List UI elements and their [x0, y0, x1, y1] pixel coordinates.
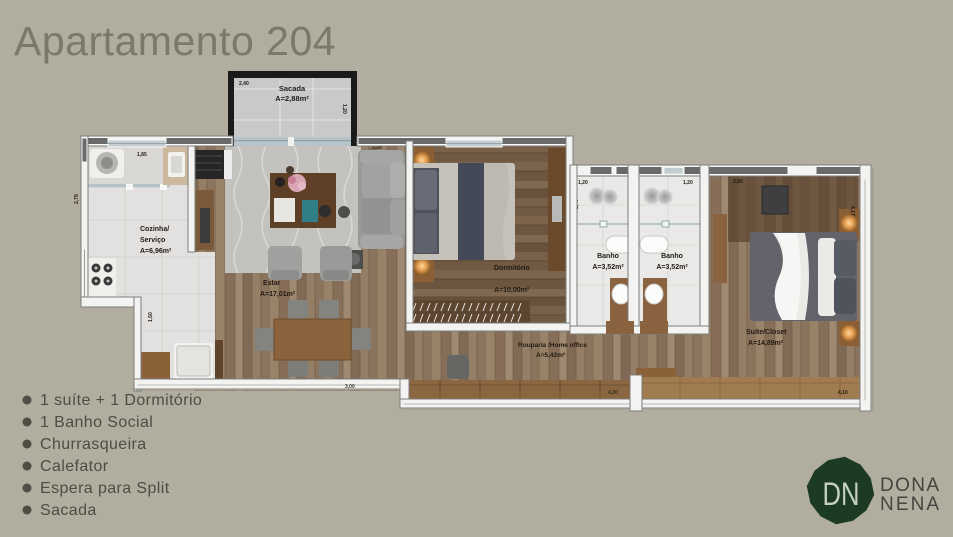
svg-text:1 suíte + 1 Dormitório: 1 suíte + 1 Dormitório	[40, 392, 202, 409]
svg-text:A=14,89m²: A=14,89m²	[748, 340, 784, 347]
svg-text:Cozinha/: Cozinha/	[140, 226, 169, 233]
svg-text:1,20: 1,20	[578, 180, 588, 186]
svg-text:A=2,88m²: A=2,88m²	[275, 94, 309, 103]
svg-text:A=5,42m²: A=5,42m²	[536, 352, 566, 359]
svg-text:1,85: 1,85	[137, 152, 147, 158]
svg-text:1,20: 1,20	[341, 104, 347, 114]
svg-text:Estar: Estar	[263, 280, 281, 287]
svg-text:1,50: 1,50	[148, 312, 154, 322]
svg-text:A=3,52m²: A=3,52m²	[656, 264, 688, 271]
svg-text:3,00: 3,00	[345, 384, 355, 390]
svg-text:2,40: 2,40	[239, 81, 249, 87]
svg-text:A=10,00m²: A=10,00m²	[494, 287, 530, 294]
svg-text:Apartamento 204: Apartamento 204	[14, 18, 336, 64]
svg-text:Banho: Banho	[661, 253, 683, 260]
svg-text:DONA: DONA	[880, 475, 941, 496]
svg-text:4,20: 4,20	[608, 390, 618, 396]
svg-text:2,79: 2,79	[74, 194, 80, 204]
svg-text:A=17,01m²: A=17,01m²	[260, 291, 296, 298]
svg-text:NENA: NENA	[880, 494, 941, 515]
svg-text:Sacada: Sacada	[40, 502, 97, 519]
svg-text:A=6,96m²: A=6,96m²	[140, 248, 172, 255]
svg-text:Suíte/Closet: Suíte/Closet	[746, 329, 787, 336]
svg-text:2,80: 2,80	[733, 179, 743, 185]
svg-text:Rouparia /Home office: Rouparia /Home office	[518, 342, 587, 349]
svg-text:Sacada: Sacada	[279, 84, 306, 93]
svg-text:1 Banho Social: 1 Banho Social	[40, 414, 153, 431]
svg-text:Serviço: Serviço	[140, 237, 165, 244]
svg-text:Banho: Banho	[597, 253, 619, 260]
svg-text:A=3,52m²: A=3,52m²	[592, 264, 624, 271]
svg-text:4,10: 4,10	[838, 390, 848, 396]
svg-text:DN: DN	[823, 476, 860, 512]
svg-text:Dormitório: Dormitório	[494, 265, 530, 272]
svg-text:Calefator: Calefator	[40, 458, 109, 475]
svg-text:4,17: 4,17	[849, 206, 855, 216]
svg-text:Churrasqueira: Churrasqueira	[40, 436, 147, 453]
svg-text:1,20: 1,20	[683, 180, 693, 186]
svg-text:Espera para Split: Espera para Split	[40, 480, 170, 497]
